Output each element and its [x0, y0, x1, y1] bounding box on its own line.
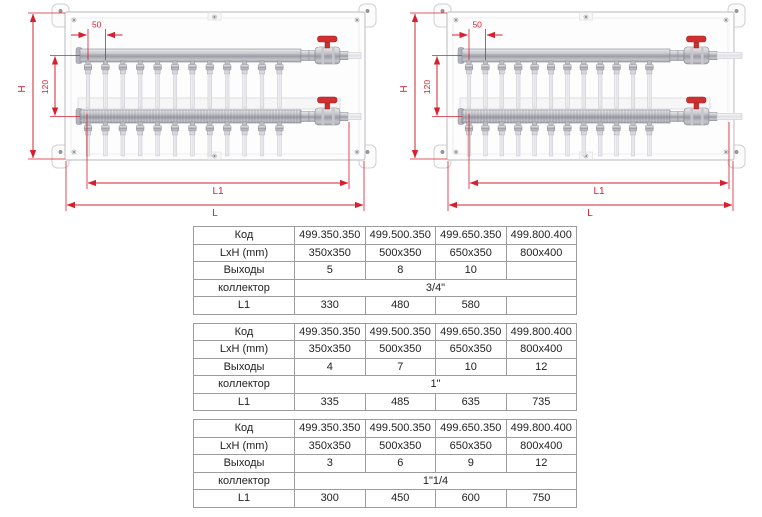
dimension-label-50: 50	[92, 20, 102, 30]
cell-value: 10	[436, 358, 507, 376]
cell-value: 350x350	[295, 244, 366, 262]
row-label: L1	[194, 490, 295, 508]
cabinet-frame	[447, 12, 734, 160]
cell-value: 500x350	[365, 437, 436, 455]
row-span-value: 1"	[295, 376, 577, 394]
dimension-label-50: 50	[472, 20, 482, 30]
cell-value: 650x350	[436, 341, 507, 359]
cell-value: 3	[295, 455, 366, 473]
cell-value: 499.800.400	[506, 323, 577, 341]
dimension-L: L	[448, 161, 733, 218]
cell-value: 499.650.350	[436, 323, 507, 341]
table-row: Код499.350.350499.500.350499.650.350499.…	[194, 227, 577, 245]
cell-value: 735	[506, 393, 577, 411]
cell-value: 12	[506, 455, 577, 473]
row-label: Код	[194, 420, 295, 438]
row-label: Код	[194, 323, 295, 341]
screw-icon	[724, 18, 728, 22]
row-label: L1	[194, 297, 295, 315]
screw-icon	[355, 150, 359, 154]
cell-value: 335	[295, 393, 366, 411]
cell-value: 650x350	[436, 437, 507, 455]
manifold-cabinet-diagram-right: H 120 50 L1 L	[390, 2, 758, 218]
cell-value: 499.350.350	[295, 323, 366, 341]
cell-value: 8	[365, 262, 436, 280]
spec-tables: Код499.350.350499.500.350499.650.350499.…	[193, 226, 577, 508]
cell-value: 450	[365, 490, 436, 508]
cell-value: 12	[506, 358, 577, 376]
row-span-value: 1"1/4	[295, 472, 577, 490]
table-row: коллектор1"	[194, 376, 577, 394]
dimension-label-120: 120	[422, 80, 432, 94]
cell-value: 10	[436, 262, 507, 280]
screw-icon	[724, 150, 728, 154]
screw-icon	[72, 150, 76, 154]
spec-table-2: Код499.350.350499.500.350499.650.350499.…	[193, 323, 577, 412]
table-row: L1300450600750	[194, 490, 577, 508]
cell-value	[506, 297, 577, 315]
table-row: Выходы5810	[194, 262, 577, 280]
screw-icon	[454, 150, 458, 154]
cell-value	[506, 262, 577, 280]
cell-value: 480	[365, 297, 436, 315]
cell-value: 499.800.400	[506, 420, 577, 438]
row-label: LxH (mm)	[194, 244, 295, 262]
page: { "colors": { "dimension_red": "#d6202f"…	[0, 0, 762, 517]
return-pipe-stub	[717, 113, 742, 119]
table-row: L1335485635735	[194, 393, 577, 411]
row-label: коллектор	[194, 376, 295, 394]
screw-icon	[355, 18, 359, 22]
table-row: LxH (mm)350x350500x350650x350800x400	[194, 437, 577, 455]
cell-value: 6	[365, 455, 436, 473]
dimension-label-L1: L1	[593, 186, 605, 197]
cell-value: 800x400	[506, 341, 577, 359]
table-row: Код499.350.350499.500.350499.650.350499.…	[194, 420, 577, 438]
screw-icon	[72, 18, 76, 22]
cell-value: 350x350	[295, 437, 366, 455]
cell-value: 800x400	[506, 244, 577, 262]
cabinet-frame	[65, 12, 365, 160]
table-row: LxH (mm)350x350500x350650x350800x400	[194, 244, 577, 262]
manifold-cabinet-diagram-left: H 120 50 L1 L	[8, 2, 380, 218]
cell-value: 500x350	[365, 341, 436, 359]
table-row: L1330480580	[194, 297, 577, 315]
row-label: Выходы	[194, 358, 295, 376]
table-row: коллектор3/4"	[194, 279, 577, 297]
cell-value: 9	[436, 455, 507, 473]
row-label: Выходы	[194, 262, 295, 280]
dimension-label-L: L	[587, 208, 593, 218]
table-row: Выходы471012	[194, 358, 577, 376]
cell-value: 499.500.350	[365, 323, 436, 341]
screw-icon	[212, 154, 216, 158]
cell-value: 635	[436, 393, 507, 411]
cell-value: 330	[295, 297, 366, 315]
cell-value: 499.650.350	[436, 420, 507, 438]
row-label: коллектор	[194, 279, 295, 297]
dimension-label-H: H	[17, 85, 28, 92]
cell-value: 499.650.350	[436, 227, 507, 245]
screw-icon	[454, 18, 458, 22]
screw-icon	[212, 15, 216, 19]
row-label: L1	[194, 393, 295, 411]
row-label: Выходы	[194, 455, 295, 473]
cell-value: 350x350	[295, 341, 366, 359]
table-row: LxH (mm)350x350500x350650x350800x400	[194, 341, 577, 359]
dimension-label-H: H	[399, 85, 410, 92]
row-label: Код	[194, 227, 295, 245]
cell-value: 650x350	[436, 244, 507, 262]
cell-value: 300	[295, 490, 366, 508]
cell-value: 485	[365, 393, 436, 411]
cell-value: 5	[295, 262, 366, 280]
cell-value: 499.500.350	[365, 227, 436, 245]
dimension-label-L1: L1	[212, 186, 224, 197]
cell-value: 500x350	[365, 244, 436, 262]
dimension-label-120: 120	[40, 80, 50, 94]
cell-value: 499.350.350	[295, 420, 366, 438]
cell-value: 499.500.350	[365, 420, 436, 438]
row-span-value: 3/4"	[295, 279, 577, 297]
supply-pipe-stub	[717, 52, 742, 58]
cell-value: 7	[365, 358, 436, 376]
cell-value: 580	[436, 297, 507, 315]
table-row: Выходы36912	[194, 455, 577, 473]
spec-table-3: Код499.350.350499.500.350499.650.350499.…	[193, 419, 577, 508]
cell-value: 4	[295, 358, 366, 376]
row-label: коллектор	[194, 472, 295, 490]
dimension-label-L: L	[212, 208, 218, 218]
cell-value: 600	[436, 490, 507, 508]
table-row: Код499.350.350499.500.350499.650.350499.…	[194, 323, 577, 341]
cell-value: 499.800.400	[506, 227, 577, 245]
table-row: коллектор1"1/4	[194, 472, 577, 490]
cell-value: 499.350.350	[295, 227, 366, 245]
cell-value: 800x400	[506, 437, 577, 455]
spec-table-1: Код499.350.350499.500.350499.650.350499.…	[193, 226, 577, 315]
screw-icon	[584, 15, 588, 19]
row-label: LxH (mm)	[194, 341, 295, 359]
cell-value: 750	[506, 490, 577, 508]
row-label: LxH (mm)	[194, 437, 295, 455]
